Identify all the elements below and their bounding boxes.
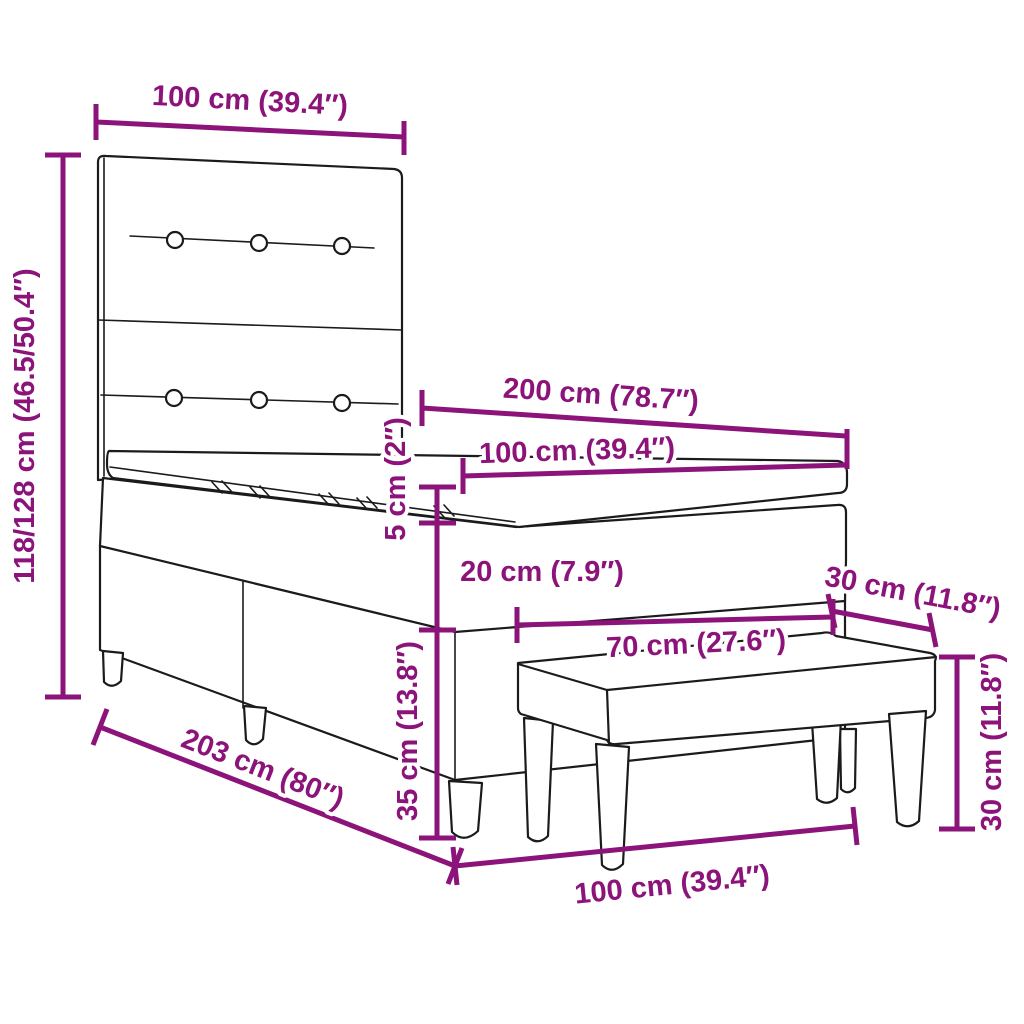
button [334,238,350,254]
label-bench-height: 30 cm (11.8″) [976,653,1008,831]
label-mattress-thickness: 20 cm (7.9″) [460,556,624,588]
button [167,232,183,248]
button [166,390,182,406]
label-topper-thickness: 5 cm (2″) [380,417,412,541]
dimension-diagram: 100 cm (39.4″) 118/128 cm (46.5/50.4″) 2… [0,0,1024,1024]
bed-leg [449,781,482,838]
button [334,395,350,411]
label-headboard-height: 118/128 cm (46.5/50.4″) [9,268,41,583]
bed-leg [840,729,856,792]
button [251,235,267,251]
label-headboard-width: 100 cm (39.4″) [151,80,348,122]
label-base-height: 35 cm (13.8″) [392,641,424,821]
bench-leg-rear-right [812,719,841,803]
bench-leg-rear-left [524,718,553,841]
diagram-canvas: 100 cm (39.4″) 118/128 cm (46.5/50.4″) 2… [0,0,1024,1024]
bench-leg-front-right [889,711,926,826]
headboard [98,156,402,480]
bed-leg [244,706,266,744]
label-bed-length: 200 cm (78.7″) [502,373,700,418]
label-mattress-width: 100 cm (39.4″) [479,432,676,470]
dim-headboard-height [45,155,81,697]
dim-bench-height [939,657,975,829]
bed-leg [103,651,123,686]
button [251,392,267,408]
